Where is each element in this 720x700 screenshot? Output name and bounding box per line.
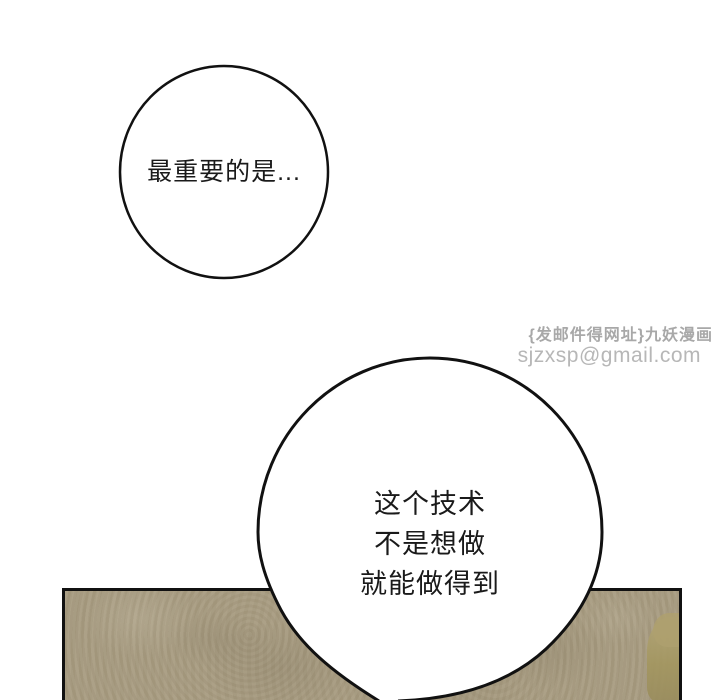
speech-bubble-large-text: 这个技术 不是想做 就能做得到 [300, 484, 560, 604]
speech-line-3: 就能做得到 [300, 564, 560, 604]
comic-page: {发邮件得网址}九妖漫画 sjzxsp@gmail.com 最重要的是... 这… [0, 0, 720, 700]
speech-line-2: 不是想做 [300, 524, 560, 564]
panel-khaki-blob-upper [653, 613, 679, 647]
speech-line-1: 这个技术 [300, 484, 560, 524]
speech-bubble-small-text: 最重要的是... [96, 156, 352, 188]
watermark-email: sjzxsp@gmail.com [518, 344, 701, 368]
comic-panel [62, 588, 682, 700]
watermark-site-label: {发邮件得网址}九妖漫画 [529, 321, 713, 345]
